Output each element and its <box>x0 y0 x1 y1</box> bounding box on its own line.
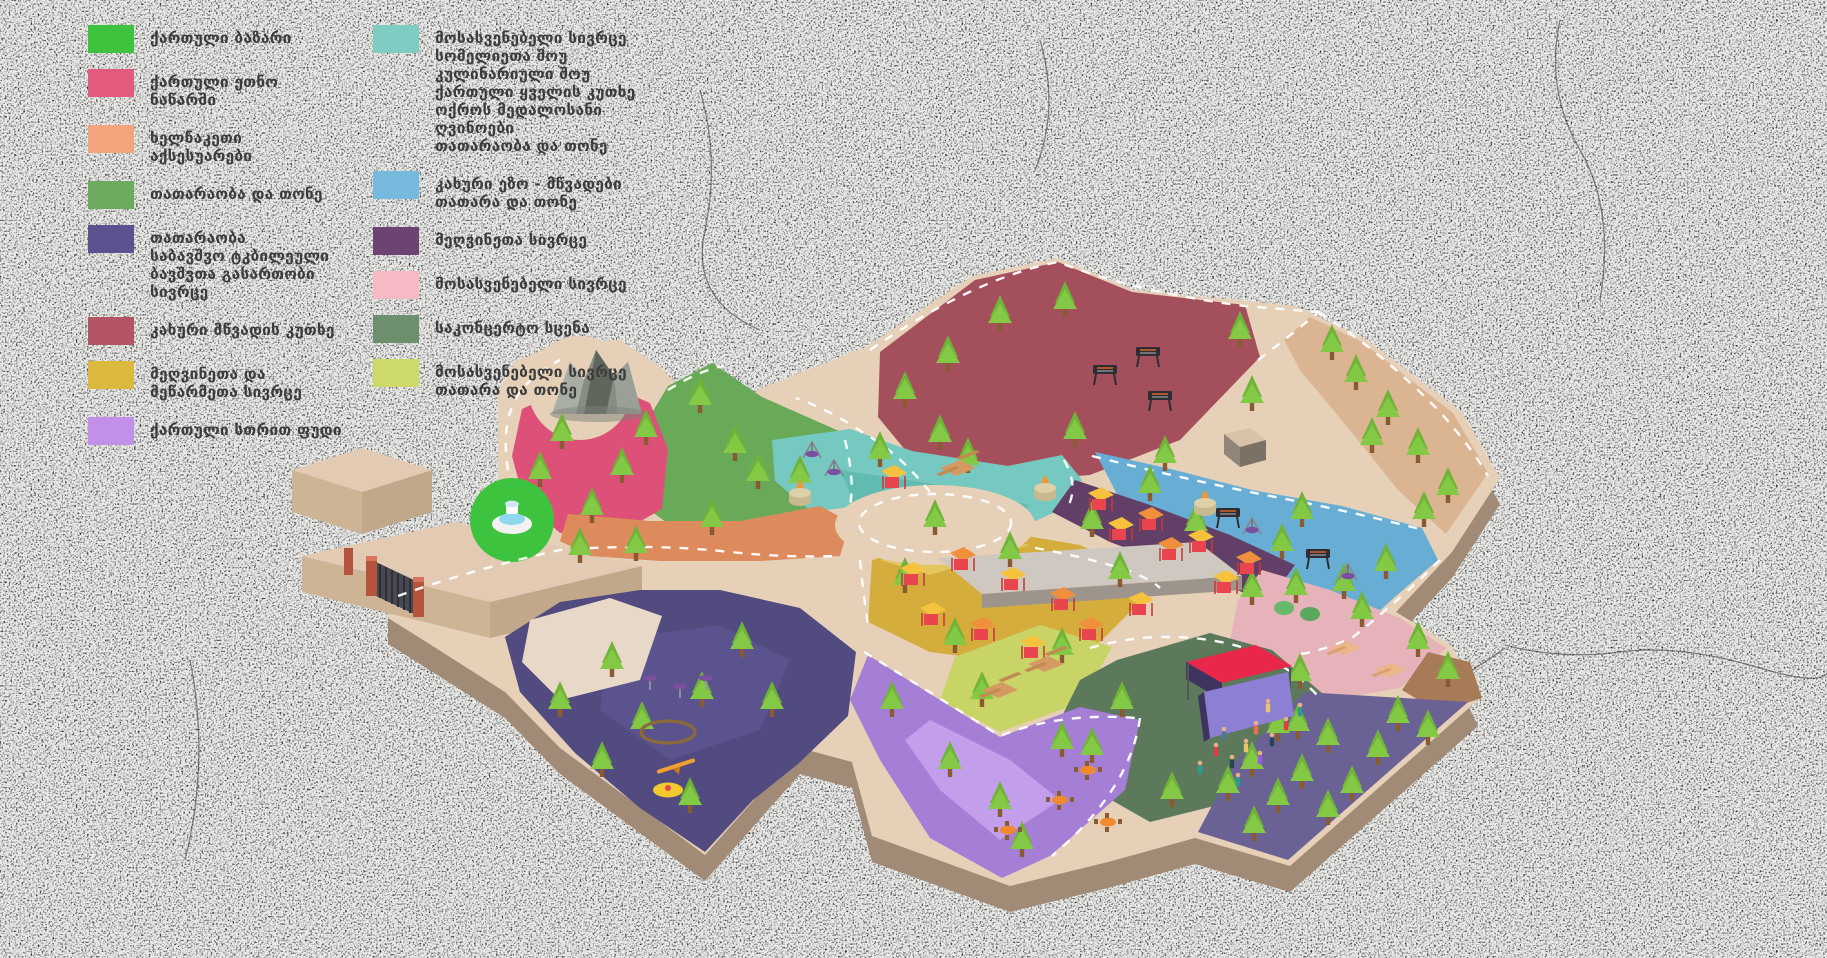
legend-label-wine-space: მეღვინეთა სივრცე <box>435 227 587 249</box>
legend-label-streetfood: ქართული სთრით ფუდი <box>150 417 342 439</box>
legend-swatch-tatara-tone <box>88 181 134 209</box>
legend-swatch-streetfood <box>88 417 134 445</box>
legend-item-bazaar: ქართული ბაზარი <box>88 25 343 53</box>
legend-label-rest-teal: მოსასვენებელი სივრცე სომელიეთა შოუ კულინ… <box>435 25 673 155</box>
legend-swatch-mtsvadi <box>88 317 134 345</box>
legend-swatch-rest-pink <box>373 271 419 299</box>
legend-item-mtsvadi: კახური მწვადის კუთხე <box>88 317 343 345</box>
legend-swatch-concert-stage <box>373 315 419 343</box>
poster-canvas: ქართული ბაზარი ქართული ეთნო ნაწარმი ხელნ… <box>0 0 1827 958</box>
legend-label-kakhuri-yard: კახური ეზო - მწვადები თათარა და თონე <box>435 171 622 211</box>
legend-label-winemakers: მეღვინეთა და მეწარმეთა სივრცე <box>150 361 302 401</box>
legend-item-rest-teal: მოსასვენებელი სივრცე სომელიეთა შოუ კულინ… <box>373 25 673 155</box>
legend-item-rest-pink: მოსასვენებელი სივრცე <box>373 271 673 299</box>
legend-label-tatara-tone: თათარაობა და თონე <box>150 181 323 203</box>
legend-item-concert-stage: საკონცერტო სცენა <box>373 315 673 343</box>
legend-swatch-kakhuri-yard <box>373 171 419 199</box>
legend-swatch-winemakers <box>88 361 134 389</box>
legend-item-ethno: ქართული ეთნო ნაწარმი <box>88 69 343 109</box>
legend-item-tatara-tone: თათარაობა და თონე <box>88 181 343 209</box>
legend-swatch-children-space <box>88 225 134 253</box>
legend-label-accessories: ხელნაკეთი აქსესუარები <box>150 125 343 165</box>
legend-label-children-space: თათარაობა საბავშვო ტკბილეული ბავშვთა გას… <box>150 225 343 301</box>
legend-label-rest-pink: მოსასვენებელი სივრცე <box>435 271 627 293</box>
legend-swatch-ethno <box>88 69 134 97</box>
legend-item-rest-yellowgreen: მოსასვენებელი სივრცე თათარა და თონე <box>373 359 673 399</box>
legend-swatch-rest-teal <box>373 25 419 53</box>
legend-label-mtsvadi: კახური მწვადის კუთხე <box>150 317 335 339</box>
legend-item-kakhuri-yard: კახური ეზო - მწვადები თათარა და თონე <box>373 171 673 211</box>
legend-item-children-space: თათარაობა საბავშვო ტკბილეული ბავშვთა გას… <box>88 225 343 301</box>
legend-swatch-rest-yellowgreen <box>373 359 419 387</box>
legend-label-concert-stage: საკონცერტო სცენა <box>435 315 590 337</box>
legend-label-rest-yellowgreen: მოსასვენებელი სივრცე თათარა და თონე <box>435 359 627 399</box>
legend-swatch-wine-space <box>373 227 419 255</box>
legend-label-bazaar: ქართული ბაზარი <box>150 25 292 47</box>
bazaar-fountain <box>470 478 554 562</box>
legend-swatch-accessories <box>88 125 134 153</box>
map-legend: ქართული ბაზარი ქართული ეთნო ნაწარმი ხელნ… <box>88 25 673 445</box>
legend-label-ethno: ქართული ეთნო ნაწარმი <box>150 69 343 109</box>
legend-column-1: ქართული ბაზარი ქართული ეთნო ნაწარმი ხელნ… <box>88 25 343 445</box>
legend-item-winemakers: მეღვინეთა და მეწარმეთა სივრცე <box>88 361 343 401</box>
legend-column-2: მოსასვენებელი სივრცე სომელიეთა შოუ კულინ… <box>373 25 673 445</box>
legend-item-accessories: ხელნაკეთი აქსესუარები <box>88 125 343 165</box>
legend-item-wine-space: მეღვინეთა სივრცე <box>373 227 673 255</box>
legend-item-streetfood: ქართული სთრით ფუდი <box>88 417 343 445</box>
legend-swatch-bazaar <box>88 25 134 53</box>
